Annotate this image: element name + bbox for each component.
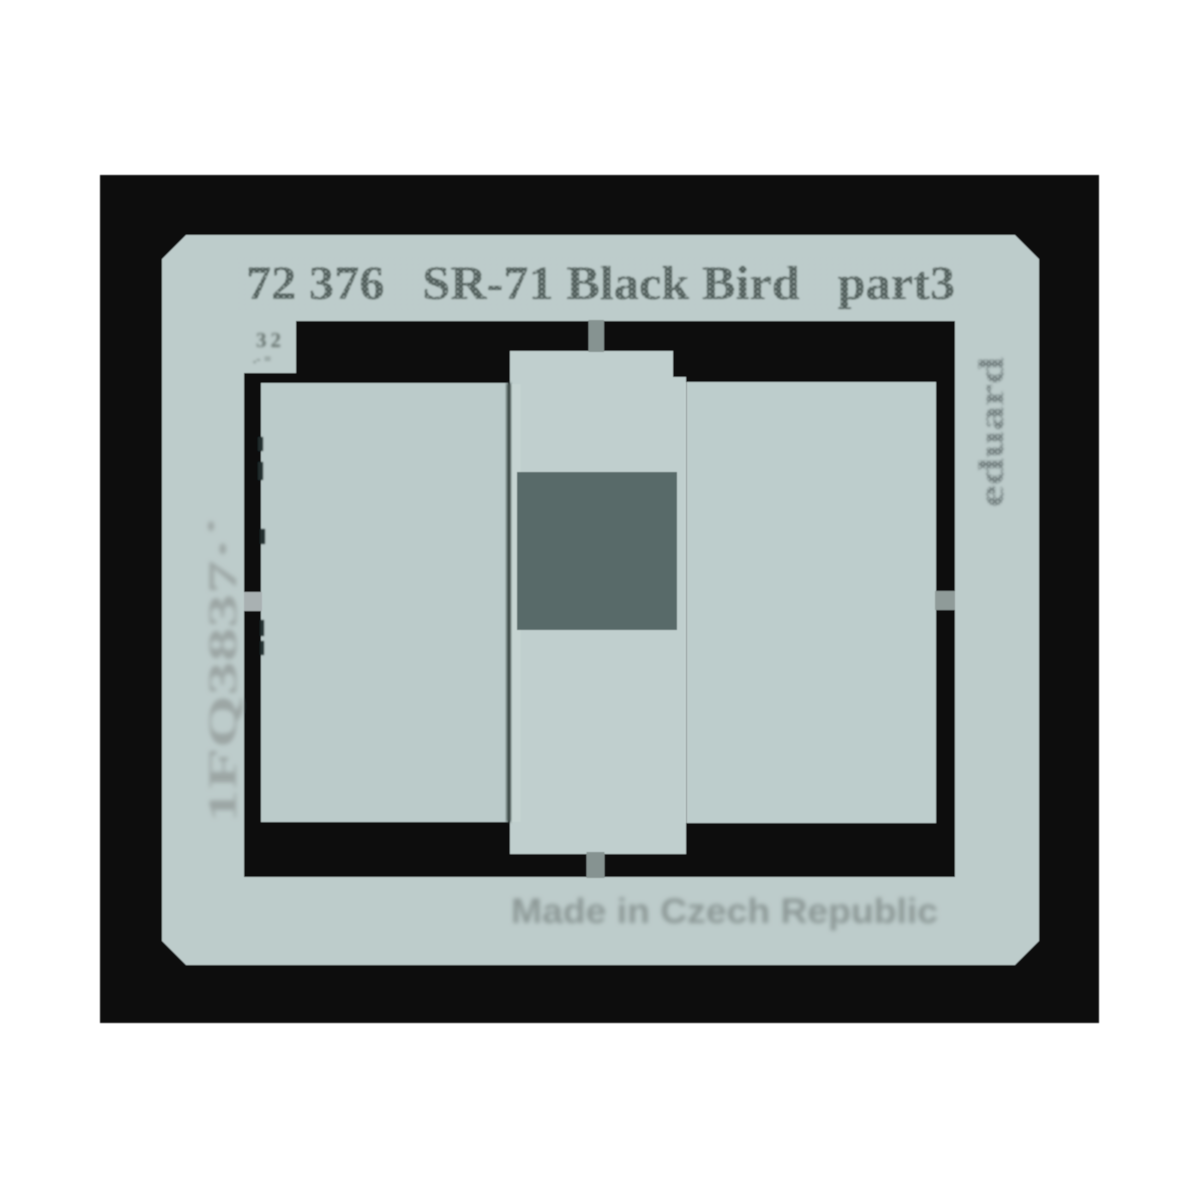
svg-text:.- =: .- = bbox=[253, 351, 271, 366]
svg-text:32: 32 bbox=[256, 328, 285, 352]
svg-text:1FQ3837·˙: 1FQ3837·˙ bbox=[200, 515, 245, 823]
svg-text:Made in Czech Republic: Made in Czech Republic bbox=[511, 892, 938, 931]
